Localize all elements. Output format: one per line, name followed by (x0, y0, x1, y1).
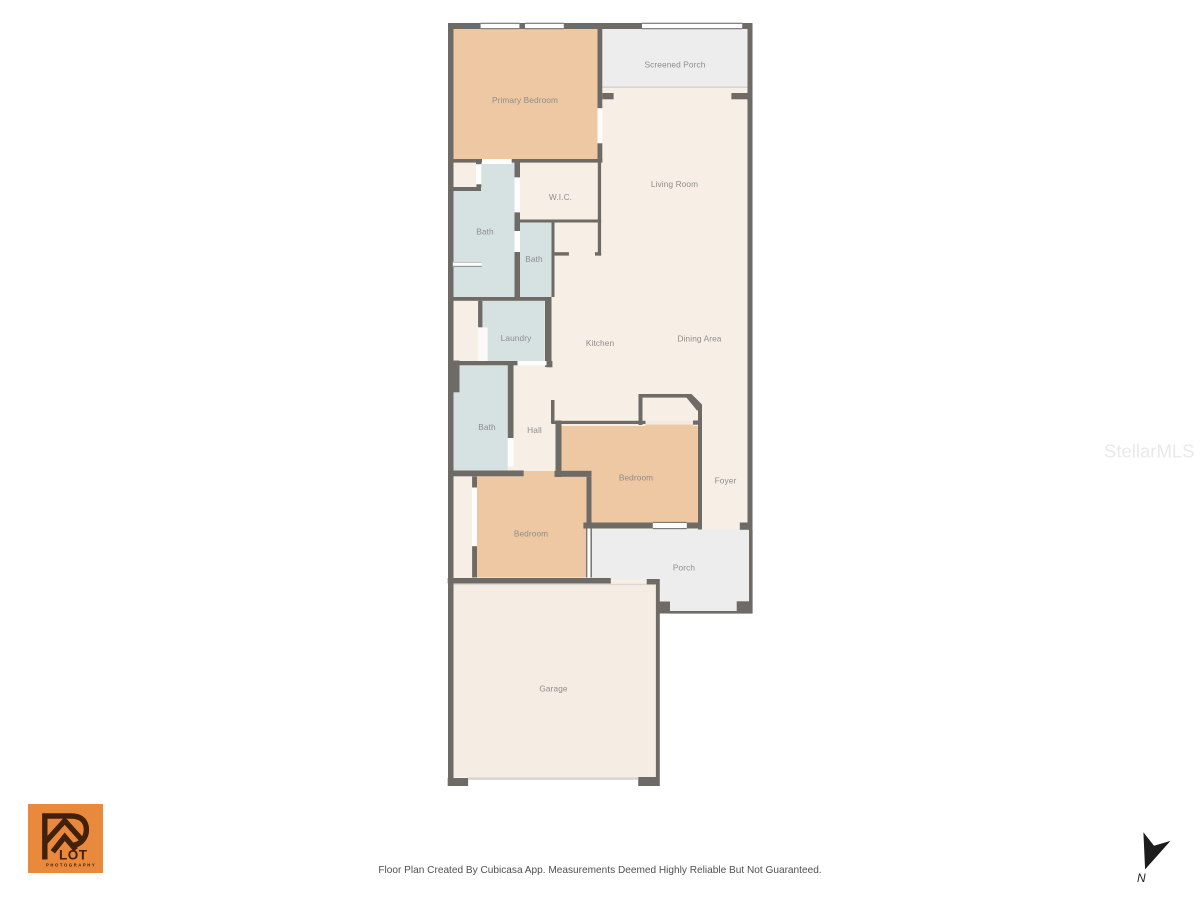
svg-text:Bath: Bath (478, 422, 496, 432)
svg-text:PHOTOGRAPHY: PHOTOGRAPHY (46, 863, 96, 868)
svg-text:Kitchen: Kitchen (586, 338, 615, 348)
svg-text:Bedroom: Bedroom (514, 529, 548, 539)
svg-text:Porch: Porch (673, 563, 695, 573)
svg-text:N: N (1137, 871, 1146, 885)
svg-text:Living Room: Living Room (651, 179, 698, 189)
svg-text:W.I.C.: W.I.C. (549, 192, 572, 202)
svg-text:LOT: LOT (59, 848, 88, 863)
svg-text:StellarMLS: StellarMLS (1104, 441, 1194, 462)
svg-text:Bath: Bath (525, 254, 543, 264)
svg-text:Laundry: Laundry (501, 333, 532, 343)
svg-text:Screened Porch: Screened Porch (645, 60, 706, 70)
svg-text:Bath: Bath (476, 227, 494, 237)
svg-text:Primary Bedroom: Primary Bedroom (492, 95, 558, 105)
svg-text:Garage: Garage (539, 684, 568, 694)
svg-text:Dining Area: Dining Area (678, 334, 722, 344)
svg-text:Foyer: Foyer (715, 476, 737, 486)
svg-text:Bedroom: Bedroom (619, 473, 653, 483)
svg-text:Hall: Hall (527, 425, 542, 435)
svg-text:Floor Plan Created By Cubicasa: Floor Plan Created By Cubicasa App. Meas… (378, 865, 821, 876)
